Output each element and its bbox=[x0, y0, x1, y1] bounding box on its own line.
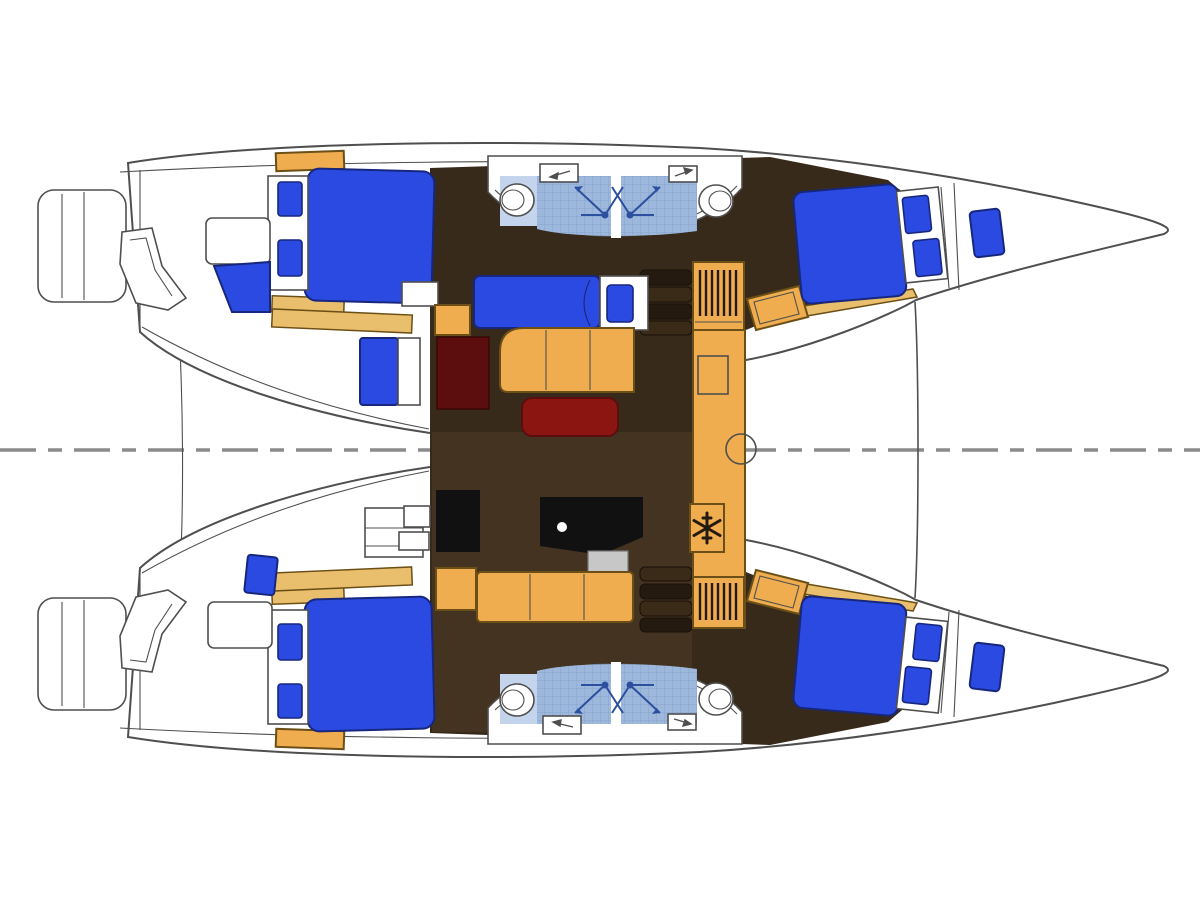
coffee-table bbox=[522, 398, 618, 436]
vanity-unit bbox=[398, 338, 420, 405]
side-shelf bbox=[402, 282, 438, 306]
l-shaped-sofa bbox=[500, 328, 634, 392]
pillow bbox=[902, 195, 932, 234]
floor-plan-canvas: catamaran-yacht-deck-floor-plan bbox=[0, 0, 1200, 900]
companionway-steps-starboard bbox=[640, 567, 692, 632]
double-berth bbox=[793, 184, 907, 305]
pillow bbox=[278, 240, 302, 276]
louvered-locker-top bbox=[693, 262, 744, 330]
side-locker bbox=[436, 568, 476, 610]
pillow bbox=[278, 624, 302, 660]
pillow bbox=[278, 182, 302, 216]
pillow bbox=[902, 666, 932, 705]
settee-berth bbox=[474, 276, 600, 328]
toilet-icon bbox=[500, 684, 534, 716]
vanity-unit bbox=[669, 166, 697, 182]
toilet-icon bbox=[699, 185, 733, 217]
starboard-swim-platform bbox=[38, 598, 126, 710]
toilet-icon bbox=[699, 683, 733, 715]
refrigerator bbox=[690, 504, 724, 552]
vanity-unit bbox=[668, 714, 696, 730]
side-locker bbox=[435, 305, 470, 335]
seat-cushion bbox=[244, 555, 278, 596]
port-swim-platform bbox=[38, 190, 126, 302]
vanity-unit bbox=[540, 164, 578, 182]
double-berth bbox=[304, 596, 434, 731]
storage-cabinet bbox=[437, 337, 489, 409]
pillow bbox=[607, 285, 633, 322]
electronics-cabinet bbox=[436, 490, 480, 552]
seat-back bbox=[208, 602, 272, 648]
bow-hatch-cushion bbox=[969, 208, 1004, 257]
vanity-unit bbox=[543, 716, 581, 734]
lower-settee bbox=[477, 572, 633, 622]
seat-back bbox=[206, 218, 270, 264]
pillow bbox=[913, 238, 943, 277]
toilet-icon bbox=[500, 184, 534, 216]
louvered-locker-bottom bbox=[693, 577, 744, 628]
shower-divider-wall bbox=[611, 174, 621, 238]
shower-divider-wall bbox=[611, 662, 621, 726]
pillow bbox=[278, 684, 302, 718]
bow-hatch-cushion bbox=[969, 642, 1004, 691]
vanity-seat-cushion bbox=[360, 338, 398, 405]
pillow bbox=[913, 623, 943, 662]
nav-seat bbox=[588, 551, 628, 572]
double-berth bbox=[793, 596, 907, 717]
side-shelf bbox=[399, 532, 429, 550]
side-shelf bbox=[404, 506, 430, 527]
nav-lamp bbox=[557, 522, 567, 532]
